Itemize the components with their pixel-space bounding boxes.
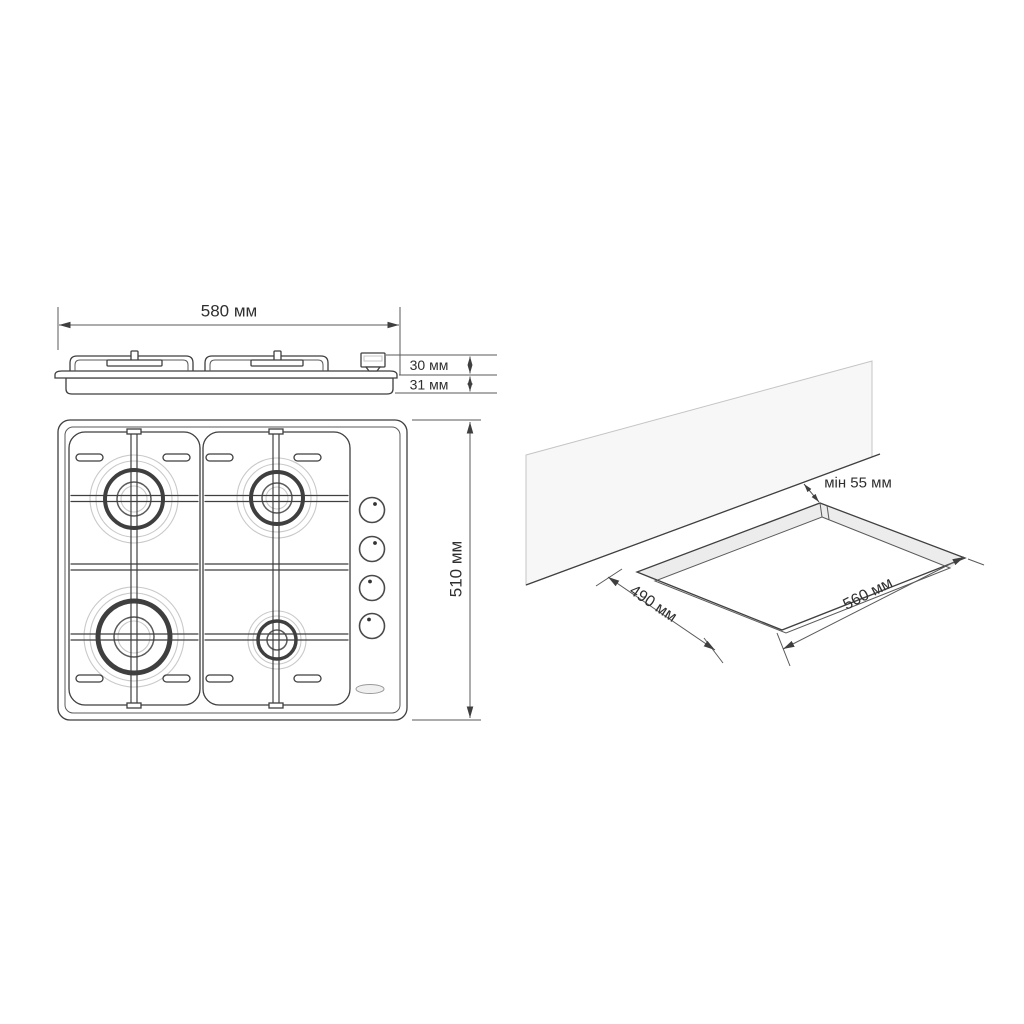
knob-1 [360,498,385,523]
burner-right-side [251,351,303,366]
knob-marker-dot [373,541,377,545]
knob-3 [360,576,385,601]
burner-left-side [107,351,162,366]
knob-4 [360,614,385,639]
grate-panel-left [69,432,200,705]
dim-label-30: 30 мм [410,357,449,373]
dimension-depth-510: 510 мм [412,420,481,720]
dim-label-560: 560 мм [840,574,895,613]
dim-label-490: 490 мм [626,582,680,626]
dimension-wall-gap-55: мін 55 мм [804,475,892,503]
dim-label-580: 580 мм [201,302,257,321]
brand-badge [356,685,384,694]
burner-bottom-left [84,587,184,687]
extension-line [704,638,723,663]
extension-line [968,559,984,565]
top-view-diagram: 510 мм [58,420,481,720]
dim-label-510: 510 мм [447,541,466,597]
dim-label-31: 31 мм [410,377,449,393]
hob-surface-lip [55,371,397,378]
dimension-line [783,557,964,649]
technical-drawing: 580 мм [0,0,1024,1024]
dim-label-min55: мін 55 мм [824,475,892,492]
installation-diagram: мін 55 мм 490 мм 560 мм [526,361,984,666]
drawing-canvas: 580 мм [0,0,1024,1024]
extension-line [777,633,790,666]
knob-marker-dot [367,618,371,622]
grate-bar-tabs [127,429,283,708]
hob-side-profile [55,351,397,394]
knob-marker-dot [373,502,377,506]
cutout-right-strip [820,503,965,568]
control-knobs [360,498,385,639]
dimension-line [804,484,819,502]
knob-marker-dot [368,580,372,584]
side-view-diagram: 580 мм [55,302,497,395]
hob-body-profile [66,378,393,394]
knob-side [361,353,385,371]
burner-top-right [237,458,317,538]
dimension-heights: 30 мм 31 мм [386,355,497,393]
dimension-cutout-width-560: 560 мм [777,557,984,666]
burner-top-left [90,455,178,543]
knob-2 [360,537,385,562]
cutout-inner-edge [655,517,950,633]
